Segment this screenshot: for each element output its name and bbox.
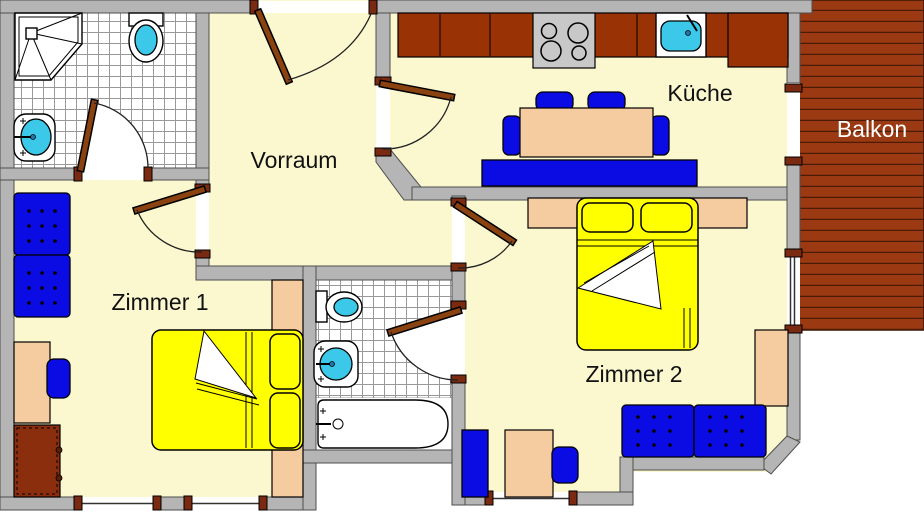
room-label-vorraum: Vorraum (251, 147, 338, 173)
chair (651, 116, 669, 155)
sofa (622, 405, 766, 457)
stove-icon (533, 13, 595, 68)
pillow (582, 203, 633, 232)
floor-plan: Vorraum Küche Balkon Zimmer 1 Zimmer 2 (0, 0, 924, 520)
room-label-kueche: Küche (667, 80, 732, 106)
pillow (270, 393, 300, 448)
wardrobe (462, 430, 488, 497)
dining-table (520, 108, 653, 157)
chair (503, 116, 521, 155)
balcony-deck (798, 0, 924, 330)
kitchen-sink-icon (656, 13, 706, 57)
wash-basin-icon (14, 114, 55, 161)
bathtub-icon (316, 400, 448, 448)
desk (505, 430, 553, 497)
room-label-zimmer1: Zimmer 1 (111, 289, 208, 315)
room-label-balkon: Balkon (837, 116, 907, 142)
chair (47, 359, 70, 398)
cabinet (755, 330, 788, 406)
desk (14, 342, 50, 423)
bed (152, 330, 303, 450)
wash-basin-icon (314, 341, 358, 387)
sofa (14, 193, 70, 317)
toilet-icon (316, 291, 362, 322)
chair (552, 447, 578, 483)
bed (577, 198, 698, 350)
toilet-icon (129, 13, 163, 62)
room-label-zimmer2: Zimmer 2 (585, 361, 682, 387)
bench (482, 160, 697, 186)
pillow (270, 334, 300, 389)
dresser (14, 425, 62, 497)
pillow (641, 203, 692, 232)
